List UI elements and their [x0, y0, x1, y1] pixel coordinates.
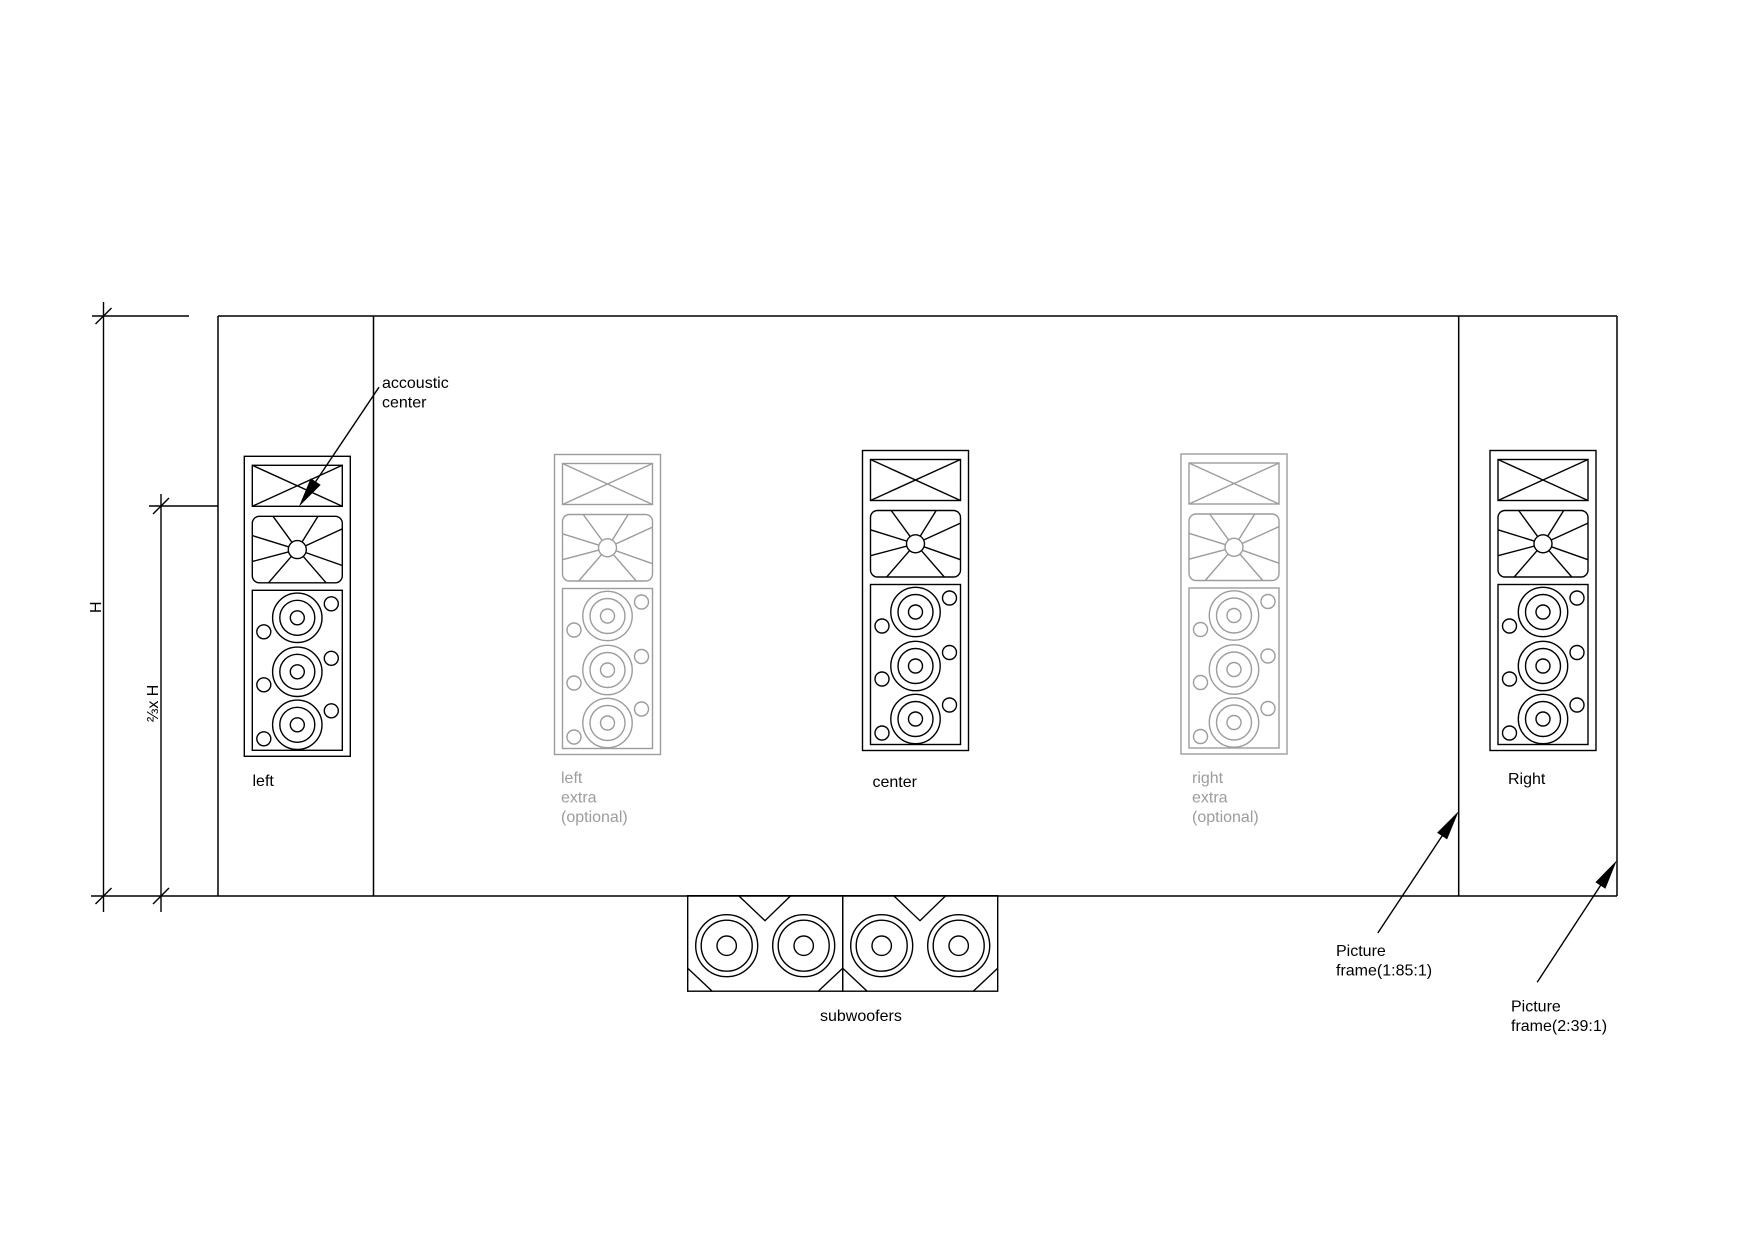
svg-text:frame(2:39:1): frame(2:39:1) [1511, 1018, 1607, 1035]
svg-text:extra: extra [561, 790, 597, 807]
svg-text:frame(1:85:1): frame(1:85:1) [1336, 963, 1432, 980]
svg-text:(optional): (optional) [1192, 809, 1259, 826]
svg-text:center: center [382, 395, 427, 412]
svg-text:(optional): (optional) [561, 809, 628, 826]
svg-text:⅔x H: ⅔x H [145, 685, 162, 722]
svg-text:left: left [253, 773, 275, 790]
svg-text:extra: extra [1192, 790, 1228, 807]
svg-text:Picture: Picture [1336, 943, 1386, 960]
svg-text:Right: Right [1508, 771, 1546, 788]
svg-text:accoustic: accoustic [382, 375, 449, 392]
svg-text:center: center [873, 774, 918, 791]
svg-text:right: right [1192, 770, 1224, 787]
svg-text:subwoofers: subwoofers [820, 1008, 902, 1025]
svg-text:Picture: Picture [1511, 999, 1561, 1016]
svg-text:H: H [88, 601, 105, 613]
svg-text:left: left [561, 770, 583, 787]
